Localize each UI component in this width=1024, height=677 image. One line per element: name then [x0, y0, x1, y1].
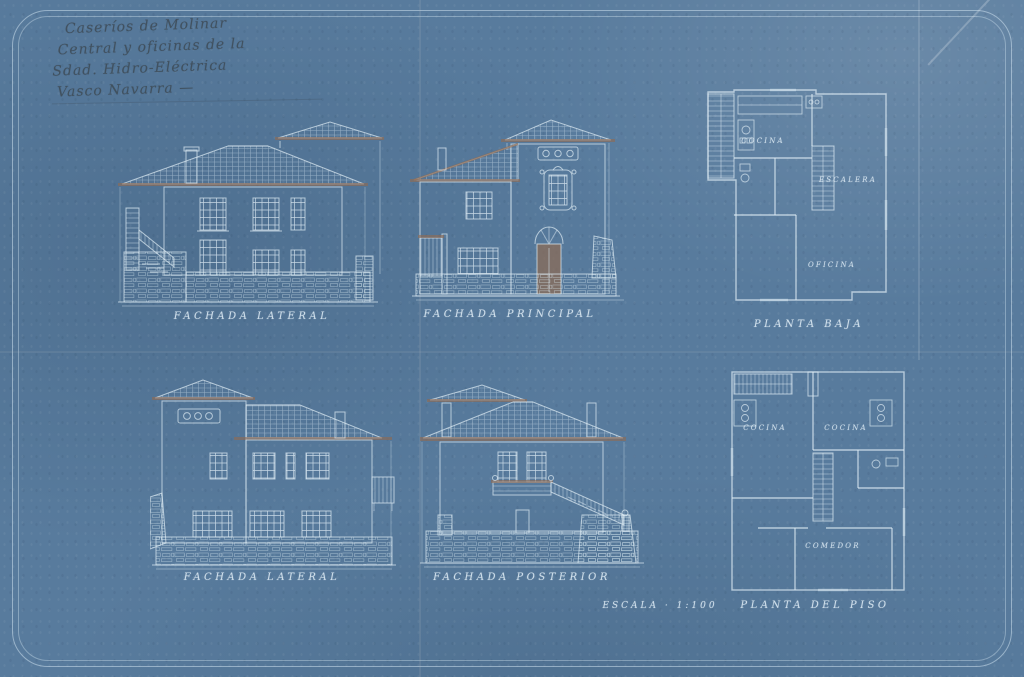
blueprint-sheet: Caseríos de Molinar Central y oficinas d… [0, 0, 1024, 677]
chimney [438, 148, 446, 170]
caption-planta-piso: PLANTA DEL PISO [740, 600, 889, 611]
floor-plan-planta-baja [700, 80, 912, 320]
entry-stair [708, 94, 734, 178]
handwritten-annotation: Caseríos de Molinar Central y oficinas d… [65, 13, 248, 103]
stone-base [426, 515, 638, 563]
lower-windows [200, 240, 305, 275]
round-window-band [538, 147, 578, 160]
corner-crease [927, 0, 1014, 65]
caption-planta-baja: PLANTA BAJA [754, 319, 864, 330]
stone-base [124, 252, 373, 302]
room-label-oficina: OFICINA [808, 261, 856, 269]
kitchen-fixtures-left [734, 400, 756, 426]
stone-base [416, 236, 616, 296]
horizontal-fold-crease [0, 351, 1024, 353]
tower-roof [427, 385, 527, 402]
ornate-window [540, 167, 576, 211]
caption-fachada-principal: FACHADA PRINCIPAL [423, 309, 596, 320]
room-label-comedor: COMEDOR [805, 542, 860, 550]
room-label-cocina-der: COCINA [824, 424, 868, 432]
upper-windows [210, 453, 329, 479]
ground-line [152, 565, 396, 569]
bath-fixtures [872, 458, 898, 468]
scale-note: ESCALA · 1:100 [602, 601, 717, 611]
balcony-doors [498, 452, 546, 482]
ground-door [516, 510, 529, 533]
wing-windows [458, 192, 498, 274]
floor-plan-planta-piso [718, 358, 918, 598]
outer-walls [708, 90, 886, 300]
tower-roof [152, 380, 255, 400]
caption-fachada-lateral-bottom: FACHADA LATERAL [184, 572, 340, 583]
kitchen-fixtures-right [870, 400, 892, 426]
elevation-fachada-posterior [418, 365, 653, 577]
side-roof [410, 144, 520, 182]
elevation-fachada-lateral-bottom [150, 365, 400, 577]
room-label-cocina-pb: COCINA [741, 137, 785, 145]
ground-line [420, 563, 644, 567]
upper-windows [197, 198, 305, 231]
caption-fachada-lateral-top: FACHADA LATERAL [174, 311, 330, 322]
right-fold-crease [918, 0, 920, 360]
interior-walls [734, 94, 812, 300]
central-stair [813, 453, 833, 521]
ground-line [118, 302, 378, 306]
wc-fixtures [740, 164, 750, 182]
round-window-band [178, 409, 220, 423]
elevation-fachada-principal [408, 108, 632, 308]
caption-fachada-posterior: FACHADA POSTERIOR [433, 572, 611, 583]
entry-stair [734, 374, 792, 394]
room-label-cocina-izq: COCINA [743, 424, 787, 432]
room-label-escalera: ESCALERA [819, 176, 877, 184]
ground-line [412, 296, 624, 300]
elevation-fachada-lateral-top [112, 112, 384, 308]
lower-windows [193, 511, 331, 537]
